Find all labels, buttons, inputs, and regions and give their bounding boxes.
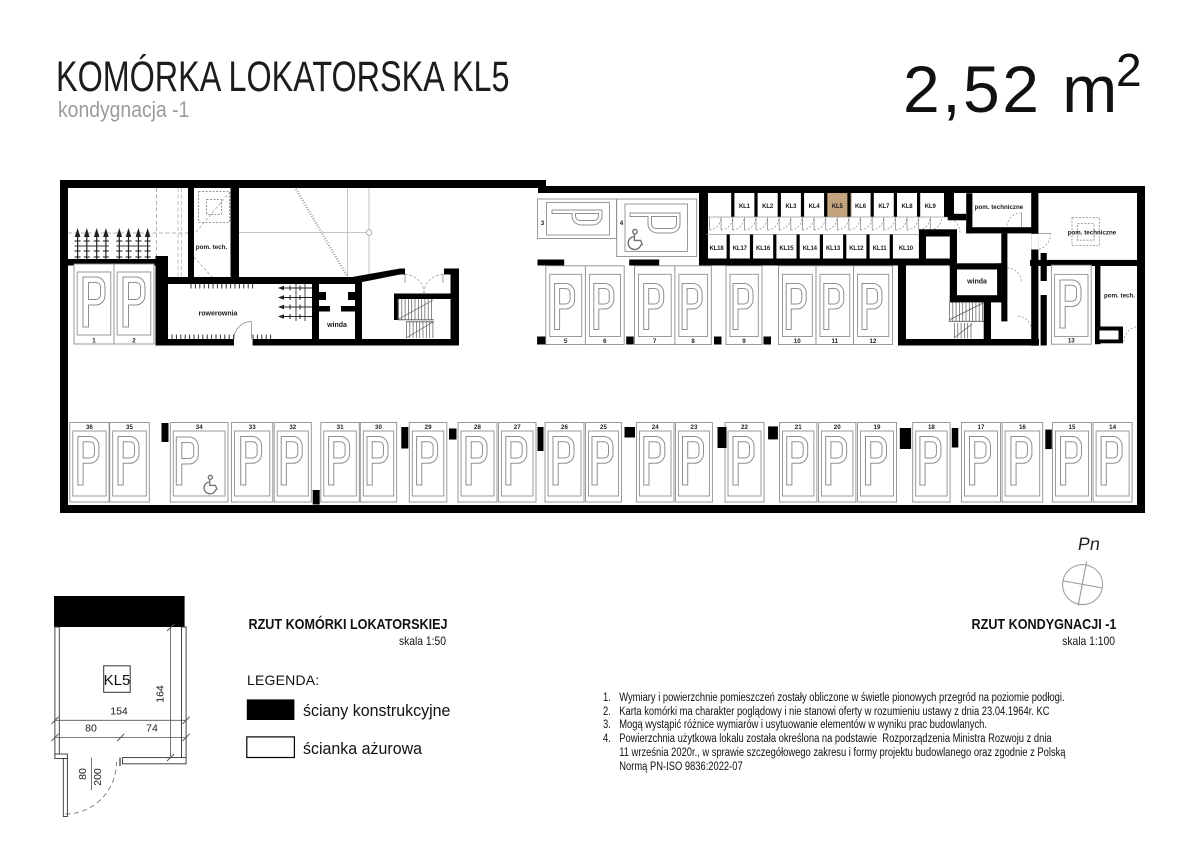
svg-text:4: 4 <box>620 220 624 227</box>
svg-text:80: 80 <box>77 768 89 780</box>
svg-text:10: 10 <box>794 338 801 345</box>
svg-text:KL15: KL15 <box>779 246 794 252</box>
svg-text:21: 21 <box>795 424 802 431</box>
svg-text:34: 34 <box>196 424 203 431</box>
svg-text:pom. techniczne: pom. techniczne <box>975 204 1024 211</box>
svg-text:19: 19 <box>874 424 881 431</box>
svg-text:17: 17 <box>978 424 985 431</box>
svg-text:KL10: KL10 <box>899 246 914 252</box>
svg-text:KL6: KL6 <box>855 204 867 210</box>
svg-text:winda: winda <box>966 279 987 286</box>
svg-text:KL1: KL1 <box>739 204 751 210</box>
svg-text:KL4: KL4 <box>809 204 821 210</box>
svg-text:6: 6 <box>603 338 607 345</box>
svg-text:1: 1 <box>92 337 96 344</box>
svg-text:35: 35 <box>126 424 133 431</box>
svg-text:154: 154 <box>110 706 128 718</box>
svg-text:KL5: KL5 <box>832 204 844 210</box>
svg-text:KL13: KL13 <box>826 246 841 252</box>
svg-text:31: 31 <box>337 424 344 431</box>
svg-text:22: 22 <box>741 424 748 431</box>
svg-text:36: 36 <box>86 424 93 431</box>
svg-text:9: 9 <box>742 338 746 345</box>
svg-text:200: 200 <box>92 768 104 786</box>
svg-text:164: 164 <box>155 685 167 703</box>
svg-text:80: 80 <box>85 723 97 735</box>
svg-text:14: 14 <box>1109 424 1116 431</box>
svg-text:16: 16 <box>1019 424 1026 431</box>
svg-text:18: 18 <box>928 424 935 431</box>
svg-text:8: 8 <box>691 338 695 345</box>
svg-text:25: 25 <box>600 424 607 431</box>
svg-text:KL12: KL12 <box>849 246 864 252</box>
svg-text:5: 5 <box>564 338 568 345</box>
svg-text:26: 26 <box>561 424 568 431</box>
svg-text:20: 20 <box>834 424 841 431</box>
svg-text:KL5: KL5 <box>104 672 131 689</box>
svg-text:24: 24 <box>652 424 659 431</box>
svg-text:KL16: KL16 <box>756 246 771 252</box>
svg-text:rowerownia: rowerownia <box>199 311 238 318</box>
svg-text:KL3: KL3 <box>785 204 797 210</box>
svg-text:23: 23 <box>691 424 698 431</box>
svg-text:KL2: KL2 <box>762 204 774 210</box>
svg-text:KL7: KL7 <box>878 204 890 210</box>
svg-text:KL14: KL14 <box>803 246 818 252</box>
svg-text:pom. tech.: pom. tech. <box>196 244 228 251</box>
svg-text:28: 28 <box>474 424 481 431</box>
svg-text:30: 30 <box>375 424 382 431</box>
svg-text:7: 7 <box>653 338 657 345</box>
svg-text:33: 33 <box>249 424 256 431</box>
svg-text:KL18: KL18 <box>709 246 724 252</box>
svg-text:13: 13 <box>1068 338 1075 345</box>
svg-text:KL11: KL11 <box>873 246 888 252</box>
svg-text:15: 15 <box>1069 424 1076 431</box>
svg-text:32: 32 <box>289 424 296 431</box>
svg-text:29: 29 <box>425 424 432 431</box>
svg-text:3: 3 <box>541 220 545 227</box>
svg-text:KL9: KL9 <box>925 204 937 210</box>
svg-text:pom. techniczne: pom. techniczne <box>1068 230 1117 237</box>
svg-text:12: 12 <box>870 338 877 345</box>
svg-text:KL8: KL8 <box>902 204 914 210</box>
svg-text:pom. tech.: pom. tech. <box>1104 293 1135 300</box>
svg-text:11: 11 <box>832 338 839 345</box>
svg-text:2: 2 <box>132 337 136 344</box>
svg-text:74: 74 <box>146 723 158 735</box>
svg-text:KL17: KL17 <box>733 246 748 252</box>
svg-text:27: 27 <box>514 424 521 431</box>
svg-text:winda: winda <box>326 322 347 329</box>
